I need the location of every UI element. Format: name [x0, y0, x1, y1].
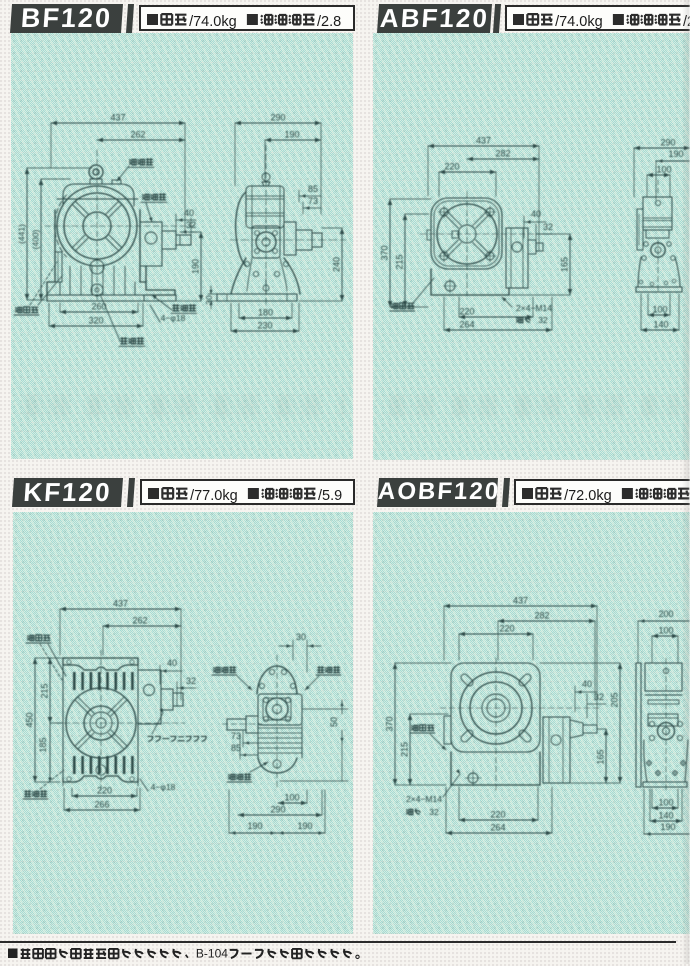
svg-text:100: 100: [658, 626, 673, 636]
svg-text:320: 320: [88, 316, 103, 326]
svg-text:(441): (441): [17, 224, 27, 244]
svg-text:40: 40: [582, 679, 592, 689]
svg-text:290: 290: [270, 805, 285, 815]
svg-text:220: 220: [499, 624, 514, 634]
svg-text:190: 190: [247, 821, 262, 831]
svg-text:85: 85: [308, 184, 318, 194]
svg-text:165: 165: [560, 257, 570, 272]
svg-text:215: 215: [40, 683, 50, 698]
svg-text:282: 282: [495, 149, 510, 159]
svg-text:437: 437: [110, 113, 125, 123]
svg-text:32: 32: [538, 315, 548, 325]
svg-text:40: 40: [167, 658, 177, 668]
svg-text:165: 165: [596, 749, 606, 764]
svg-text:32: 32: [186, 676, 196, 686]
svg-text:32: 32: [543, 222, 553, 232]
svg-text:180: 180: [258, 308, 273, 318]
svg-text:437: 437: [513, 596, 528, 606]
svg-text:215: 215: [395, 254, 405, 269]
svg-text:2×4−M14: 2×4−M14: [406, 794, 442, 804]
svg-text:290: 290: [660, 138, 675, 148]
svg-text:4−φ18: 4−φ18: [151, 782, 176, 792]
svg-text:85: 85: [231, 743, 241, 753]
svg-text:220: 220: [490, 810, 505, 820]
svg-text:240: 240: [332, 257, 342, 272]
svg-text:140: 140: [658, 811, 673, 821]
svg-text:220: 220: [459, 307, 474, 317]
svg-text:437: 437: [476, 136, 491, 146]
svg-text:282: 282: [534, 611, 549, 621]
svg-text:2×4−M14: 2×4−M14: [516, 303, 552, 313]
svg-text:220: 220: [444, 162, 459, 172]
svg-text:40: 40: [184, 208, 194, 218]
svg-text:264: 264: [490, 823, 505, 833]
svg-text:30: 30: [296, 632, 306, 642]
svg-text:230: 230: [257, 321, 272, 331]
svg-text:32: 32: [594, 692, 604, 702]
svg-text:290: 290: [270, 113, 285, 123]
svg-text:190: 190: [284, 130, 299, 140]
svg-text:370: 370: [380, 245, 390, 260]
svg-text:100: 100: [656, 165, 671, 175]
svg-text:190: 190: [297, 821, 312, 831]
svg-text:100: 100: [658, 798, 673, 808]
svg-text:262: 262: [130, 130, 145, 140]
svg-text:4−φ18: 4−φ18: [161, 313, 186, 323]
svg-text:185: 185: [38, 737, 48, 752]
svg-text:264: 264: [459, 320, 474, 330]
svg-text:190: 190: [191, 259, 201, 274]
svg-text:40: 40: [531, 209, 541, 219]
svg-text:140: 140: [653, 320, 668, 330]
svg-text:B-104: B-104: [196, 947, 228, 961]
svg-text:215: 215: [400, 742, 410, 757]
svg-text:450: 450: [25, 712, 35, 727]
svg-text:30: 30: [204, 295, 214, 305]
svg-text:190: 190: [660, 822, 675, 832]
svg-text:32: 32: [429, 807, 439, 817]
svg-text:262: 262: [132, 616, 147, 626]
svg-text:266: 266: [94, 800, 109, 810]
svg-text:73: 73: [231, 731, 241, 741]
svg-text:50: 50: [329, 717, 339, 727]
svg-text:(400): (400): [31, 229, 41, 249]
svg-text:200: 200: [658, 609, 673, 619]
svg-text:73: 73: [308, 196, 318, 206]
svg-text:437: 437: [113, 599, 128, 609]
svg-text:205: 205: [610, 692, 620, 707]
svg-text:220: 220: [97, 786, 112, 796]
svg-text:100: 100: [284, 793, 299, 803]
svg-text:100: 100: [652, 305, 667, 315]
svg-text:370: 370: [385, 716, 395, 731]
